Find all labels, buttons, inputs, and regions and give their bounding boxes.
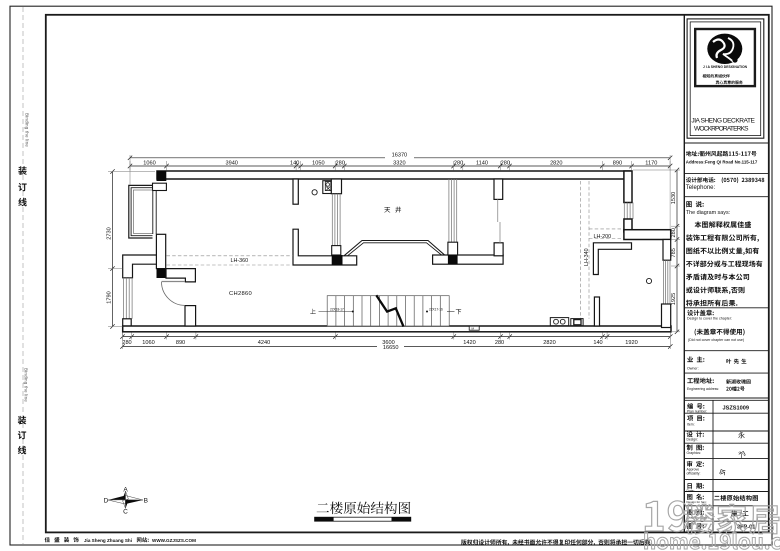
svg-text:280: 280 xyxy=(495,340,504,346)
svg-text:1925: 1925 xyxy=(671,293,677,305)
svg-text:2820: 2820 xyxy=(543,340,555,346)
svg-text:JIA SHENG DECKRATE: JIA SHENG DECKRATE xyxy=(691,118,755,125)
svg-text:16370: 16370 xyxy=(392,153,408,159)
svg-text:WWW.GZJSZS.COM: WWW.GZJSZS.COM xyxy=(152,538,196,543)
svg-text:890: 890 xyxy=(613,160,622,166)
svg-text:officiality:: officiality: xyxy=(687,471,701,475)
svg-text:280: 280 xyxy=(671,228,677,237)
svg-text:3940: 3940 xyxy=(225,160,237,166)
svg-text:Design to cover the chapter:: Design to cover the chapter: xyxy=(687,317,732,321)
svg-text:Item:: Item: xyxy=(687,423,695,427)
svg-text:Binding the line: Binding the line xyxy=(25,113,30,147)
svg-text:LH-340: LH-340 xyxy=(584,248,590,266)
svg-text:Binding the line: Binding the line xyxy=(24,368,29,402)
svg-text:Graphics:: Graphics: xyxy=(687,451,702,455)
svg-text:Date:: Date: xyxy=(687,489,695,493)
svg-text:CH2860: CH2860 xyxy=(229,291,252,297)
svg-text:1420: 1420 xyxy=(463,340,475,346)
svg-text:C: C xyxy=(123,509,128,516)
svg-text:1170: 1170 xyxy=(645,160,657,166)
svg-text:280: 280 xyxy=(501,160,510,166)
svg-text:16650: 16650 xyxy=(383,345,399,351)
svg-text:785: 785 xyxy=(671,248,677,257)
svg-text:Engineering address:: Engineering address: xyxy=(687,387,719,391)
svg-text:1920: 1920 xyxy=(625,340,637,346)
svg-text:280: 280 xyxy=(336,160,345,166)
svg-text:1140: 1140 xyxy=(476,160,488,166)
svg-text:JSZS1009: JSZS1009 xyxy=(723,406,749,412)
svg-text:(Did not cover chapter can not: (Did not cover chapter can not use) xyxy=(688,338,744,342)
svg-text:2820: 2820 xyxy=(550,160,562,166)
svg-text:D: D xyxy=(104,498,109,505)
svg-text:A: A xyxy=(123,487,128,494)
svg-text:Jia Sheng Zhuang Shi: Jia Sheng Zhuang Shi xyxy=(84,538,132,543)
svg-text:22X18-17: 22X18-17 xyxy=(330,307,344,311)
svg-text:Design:: Design: xyxy=(687,438,699,442)
svg-text:22X17-16: 22X17-16 xyxy=(429,307,443,311)
svg-text:Address:Feng Qi Road No.115-11: Address:Feng Qi Road No.115-117 xyxy=(686,159,758,164)
svg-text:1050: 1050 xyxy=(312,160,324,166)
svg-text:1790: 1790 xyxy=(107,291,113,303)
svg-text:4240: 4240 xyxy=(258,340,270,346)
svg-text:WOCKRPORATERKS: WOCKRPORATERKS xyxy=(694,125,749,132)
svg-text:2730: 2730 xyxy=(107,227,113,239)
svg-text:LH-360: LH-360 xyxy=(231,258,249,264)
svg-text:Telephone:: Telephone: xyxy=(686,185,716,191)
svg-text:3320: 3320 xyxy=(393,160,405,166)
svg-text:Owner:: Owner: xyxy=(687,366,699,370)
svg-text:140: 140 xyxy=(593,340,602,346)
svg-text:LH-200: LH-200 xyxy=(594,234,612,240)
svg-text:1060: 1060 xyxy=(143,160,155,166)
svg-text:Plan number:: Plan number: xyxy=(687,410,707,414)
svg-text:280: 280 xyxy=(454,160,463,166)
svg-text:890: 890 xyxy=(176,340,185,346)
svg-text:B: B xyxy=(144,497,148,504)
svg-text:1060: 1060 xyxy=(142,340,154,346)
svg-text:J I A SHENG DESIGNATION: J I A SHENG DESIGNATION xyxy=(703,65,748,69)
svg-text:The diagram says:: The diagram says: xyxy=(686,210,730,216)
svg-text:1530: 1530 xyxy=(671,192,677,204)
svg-text:140: 140 xyxy=(290,160,299,166)
svg-text:280: 280 xyxy=(122,340,131,346)
